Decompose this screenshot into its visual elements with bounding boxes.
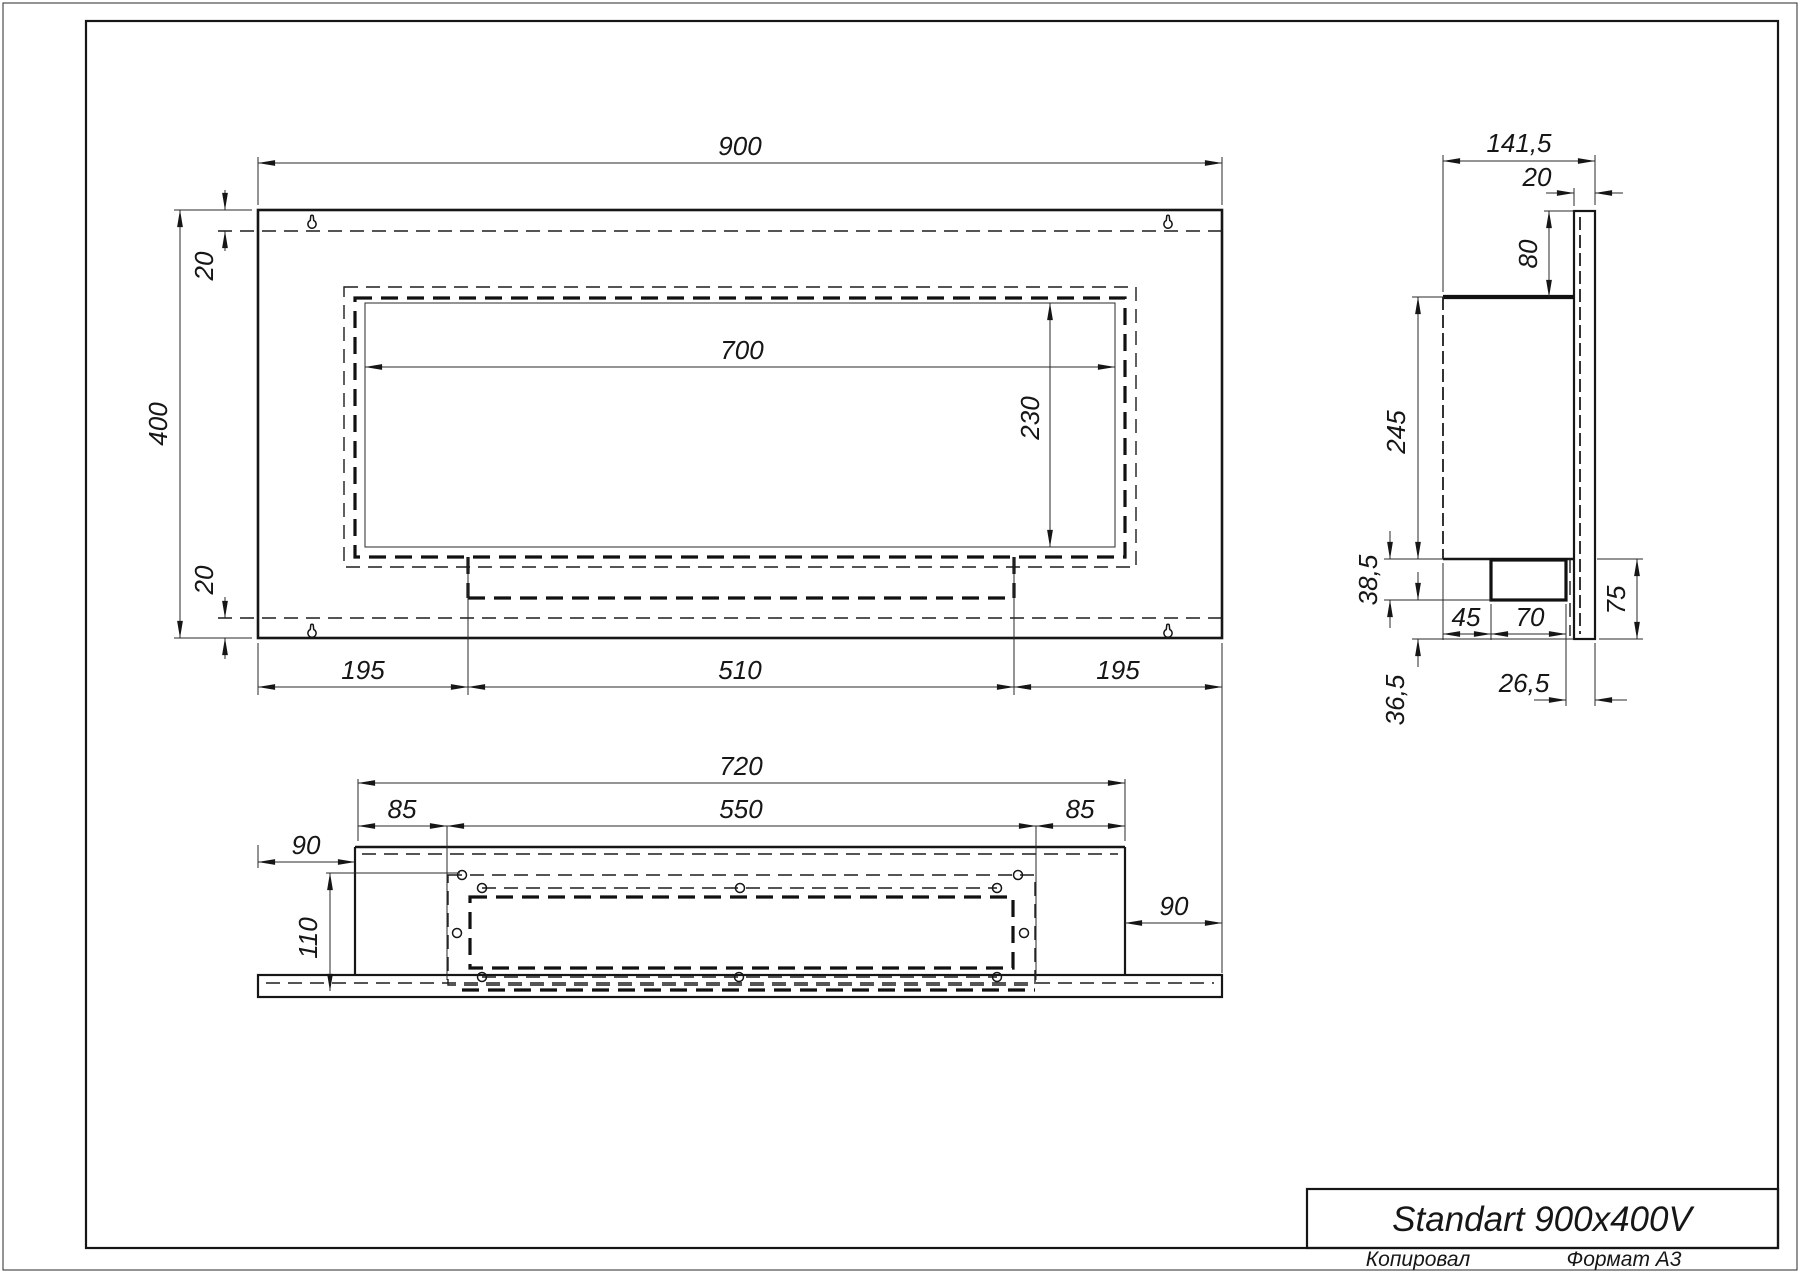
dim-bottom-body-width: 720 xyxy=(719,751,763,781)
drawing-title: Standart 900x400V xyxy=(1392,1200,1695,1239)
copied-label: Копировал xyxy=(1366,1248,1471,1271)
title-block: Standart 900x400V Копировал Формат А3 xyxy=(1307,1189,1778,1271)
screw-holes xyxy=(453,871,1029,982)
dim-side-back-offset: 26,5 xyxy=(1498,668,1550,698)
dim-opening-width: 700 xyxy=(720,335,764,365)
dim-side-plate-thickness: 20 xyxy=(1522,162,1552,192)
dim-front-bottom-inset: 20 xyxy=(189,565,219,595)
keyhole-slot-icon xyxy=(1164,624,1172,637)
keyhole-slot-icon xyxy=(308,624,316,637)
sheet-frame xyxy=(3,3,1797,1270)
dim-bottom-right-offset: 90 xyxy=(1160,891,1189,921)
dim-front-left-segment: 195 xyxy=(341,655,385,685)
dim-bottom-left-offset: 90 xyxy=(292,830,321,860)
drawing-sheet: 900 400 20 20 700 230 195 510 195 xyxy=(0,0,1800,1273)
dim-side-lower-height: 75 xyxy=(1601,585,1631,614)
dim-bottom-left-margin: 85 xyxy=(388,794,417,824)
dim-front-height: 400 xyxy=(143,402,173,446)
dim-side-top-gap: 80 xyxy=(1513,239,1543,268)
dim-side-body-height: 245 xyxy=(1381,410,1411,455)
format-label: Формат А3 xyxy=(1567,1248,1682,1271)
dim-side-tray-offset: 45 xyxy=(1452,602,1481,632)
dim-side-bottom-gap: 36,5 xyxy=(1380,674,1410,725)
keyhole-slot-icon xyxy=(308,215,316,228)
keyhole-slot-icon xyxy=(1164,215,1172,228)
side-view: 141,5 20 80 245 38,5 36,5 45 70 xyxy=(1353,128,1643,725)
dim-bottom-right-margin: 85 xyxy=(1066,794,1095,824)
dim-bottom-opening-width: 550 xyxy=(719,794,763,824)
dim-bottom-depth: 110 xyxy=(293,917,323,959)
dim-side-tray-height: 38,5 xyxy=(1353,554,1383,605)
dim-front-center-segment: 510 xyxy=(718,655,762,685)
dim-front-right-segment: 195 xyxy=(1096,655,1140,685)
dim-side-depth: 141,5 xyxy=(1486,128,1552,158)
dim-side-tray-width: 70 xyxy=(1516,602,1545,632)
dim-opening-height: 230 xyxy=(1015,396,1045,441)
dim-front-width: 900 xyxy=(718,131,762,161)
technical-drawing: 900 400 20 20 700 230 195 510 195 xyxy=(0,0,1800,1273)
dim-front-top-inset: 20 xyxy=(189,251,219,281)
bottom-view: 720 85 550 85 90 90 110 xyxy=(258,751,1222,997)
